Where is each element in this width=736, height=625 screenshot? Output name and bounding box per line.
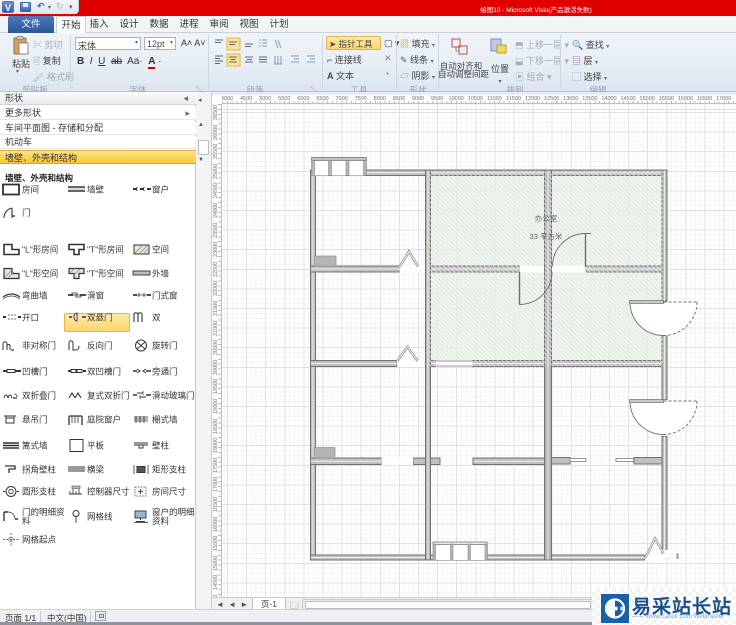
svg-text:33 平方米: 33 平方米 xyxy=(530,231,563,241)
svg-text:办公室: 办公室 xyxy=(535,213,558,223)
